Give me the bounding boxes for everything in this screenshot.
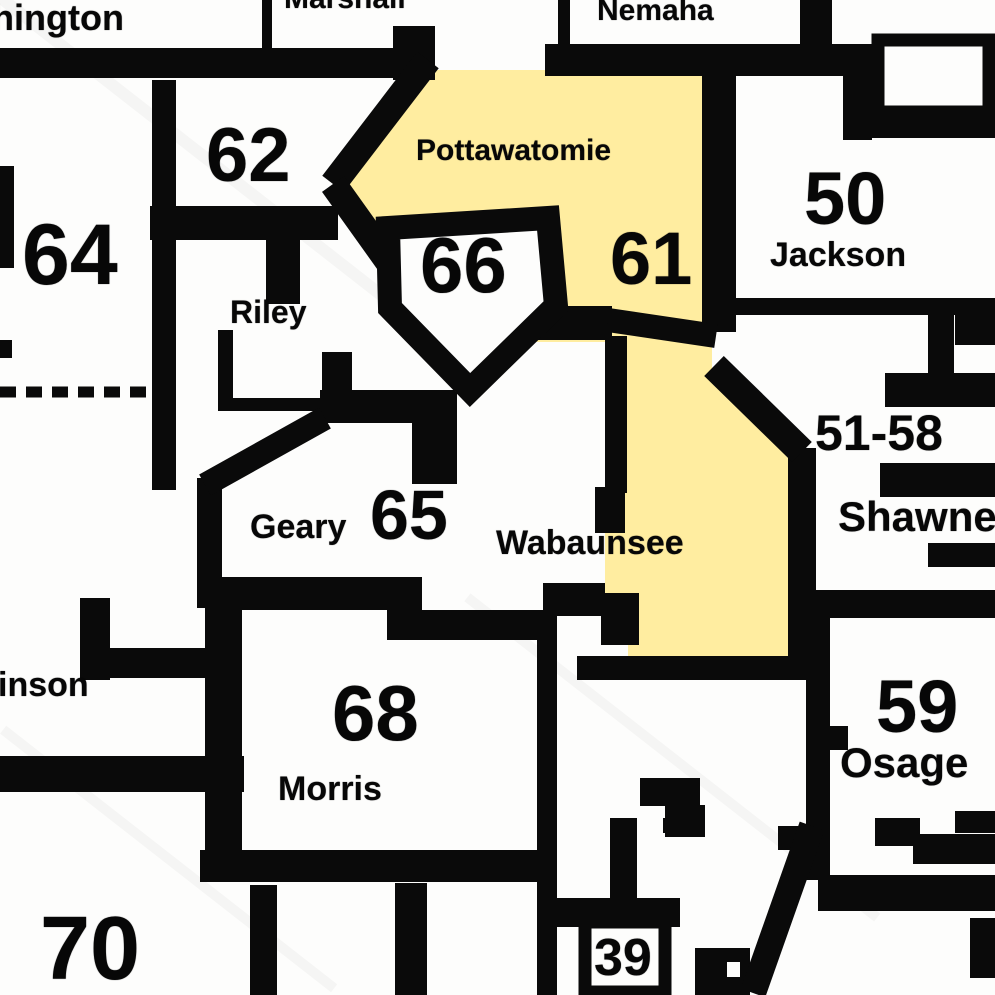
county-label-pottawatomie: Pottawatomie <box>416 136 611 166</box>
county-label-osage: Osage <box>840 742 968 784</box>
county-label-jackson: Jackson <box>770 238 906 272</box>
district-number-62: 62 <box>206 118 291 194</box>
district-number-61: 61 <box>610 222 692 296</box>
district-number-66: 66 <box>420 226 507 304</box>
district-number-50: 50 <box>804 162 886 236</box>
district-number-59: 59 <box>876 670 958 744</box>
district-number-39: 39 <box>594 932 652 984</box>
county-label-wabaunsee: Wabaunsee <box>496 526 684 560</box>
district-number-64: 64 <box>22 212 118 298</box>
district-number-70: 70 <box>40 904 140 994</box>
county-label-dickinson-partial: inson <box>0 668 89 702</box>
district-number-68: 68 <box>332 674 419 752</box>
unlabeled-district-box <box>878 40 989 112</box>
county-label-geary: Geary <box>250 510 346 544</box>
border-hole <box>727 962 740 977</box>
district-number-51-58: 51-58 <box>815 408 943 458</box>
county-label-marshall: Marshall <box>284 0 406 14</box>
county-label-riley: Riley <box>230 296 306 328</box>
county-label-morris: Morris <box>278 772 382 806</box>
district-number-65: 65 <box>370 480 448 550</box>
county-label-nemaha: Nemaha <box>597 0 714 26</box>
county-label-washington-partial: hington <box>0 0 124 36</box>
map-canvas: hington Marshall Nemaha Pottawatomie Jac… <box>0 0 995 995</box>
county-label-shawnee: Shawnee <box>838 496 995 538</box>
